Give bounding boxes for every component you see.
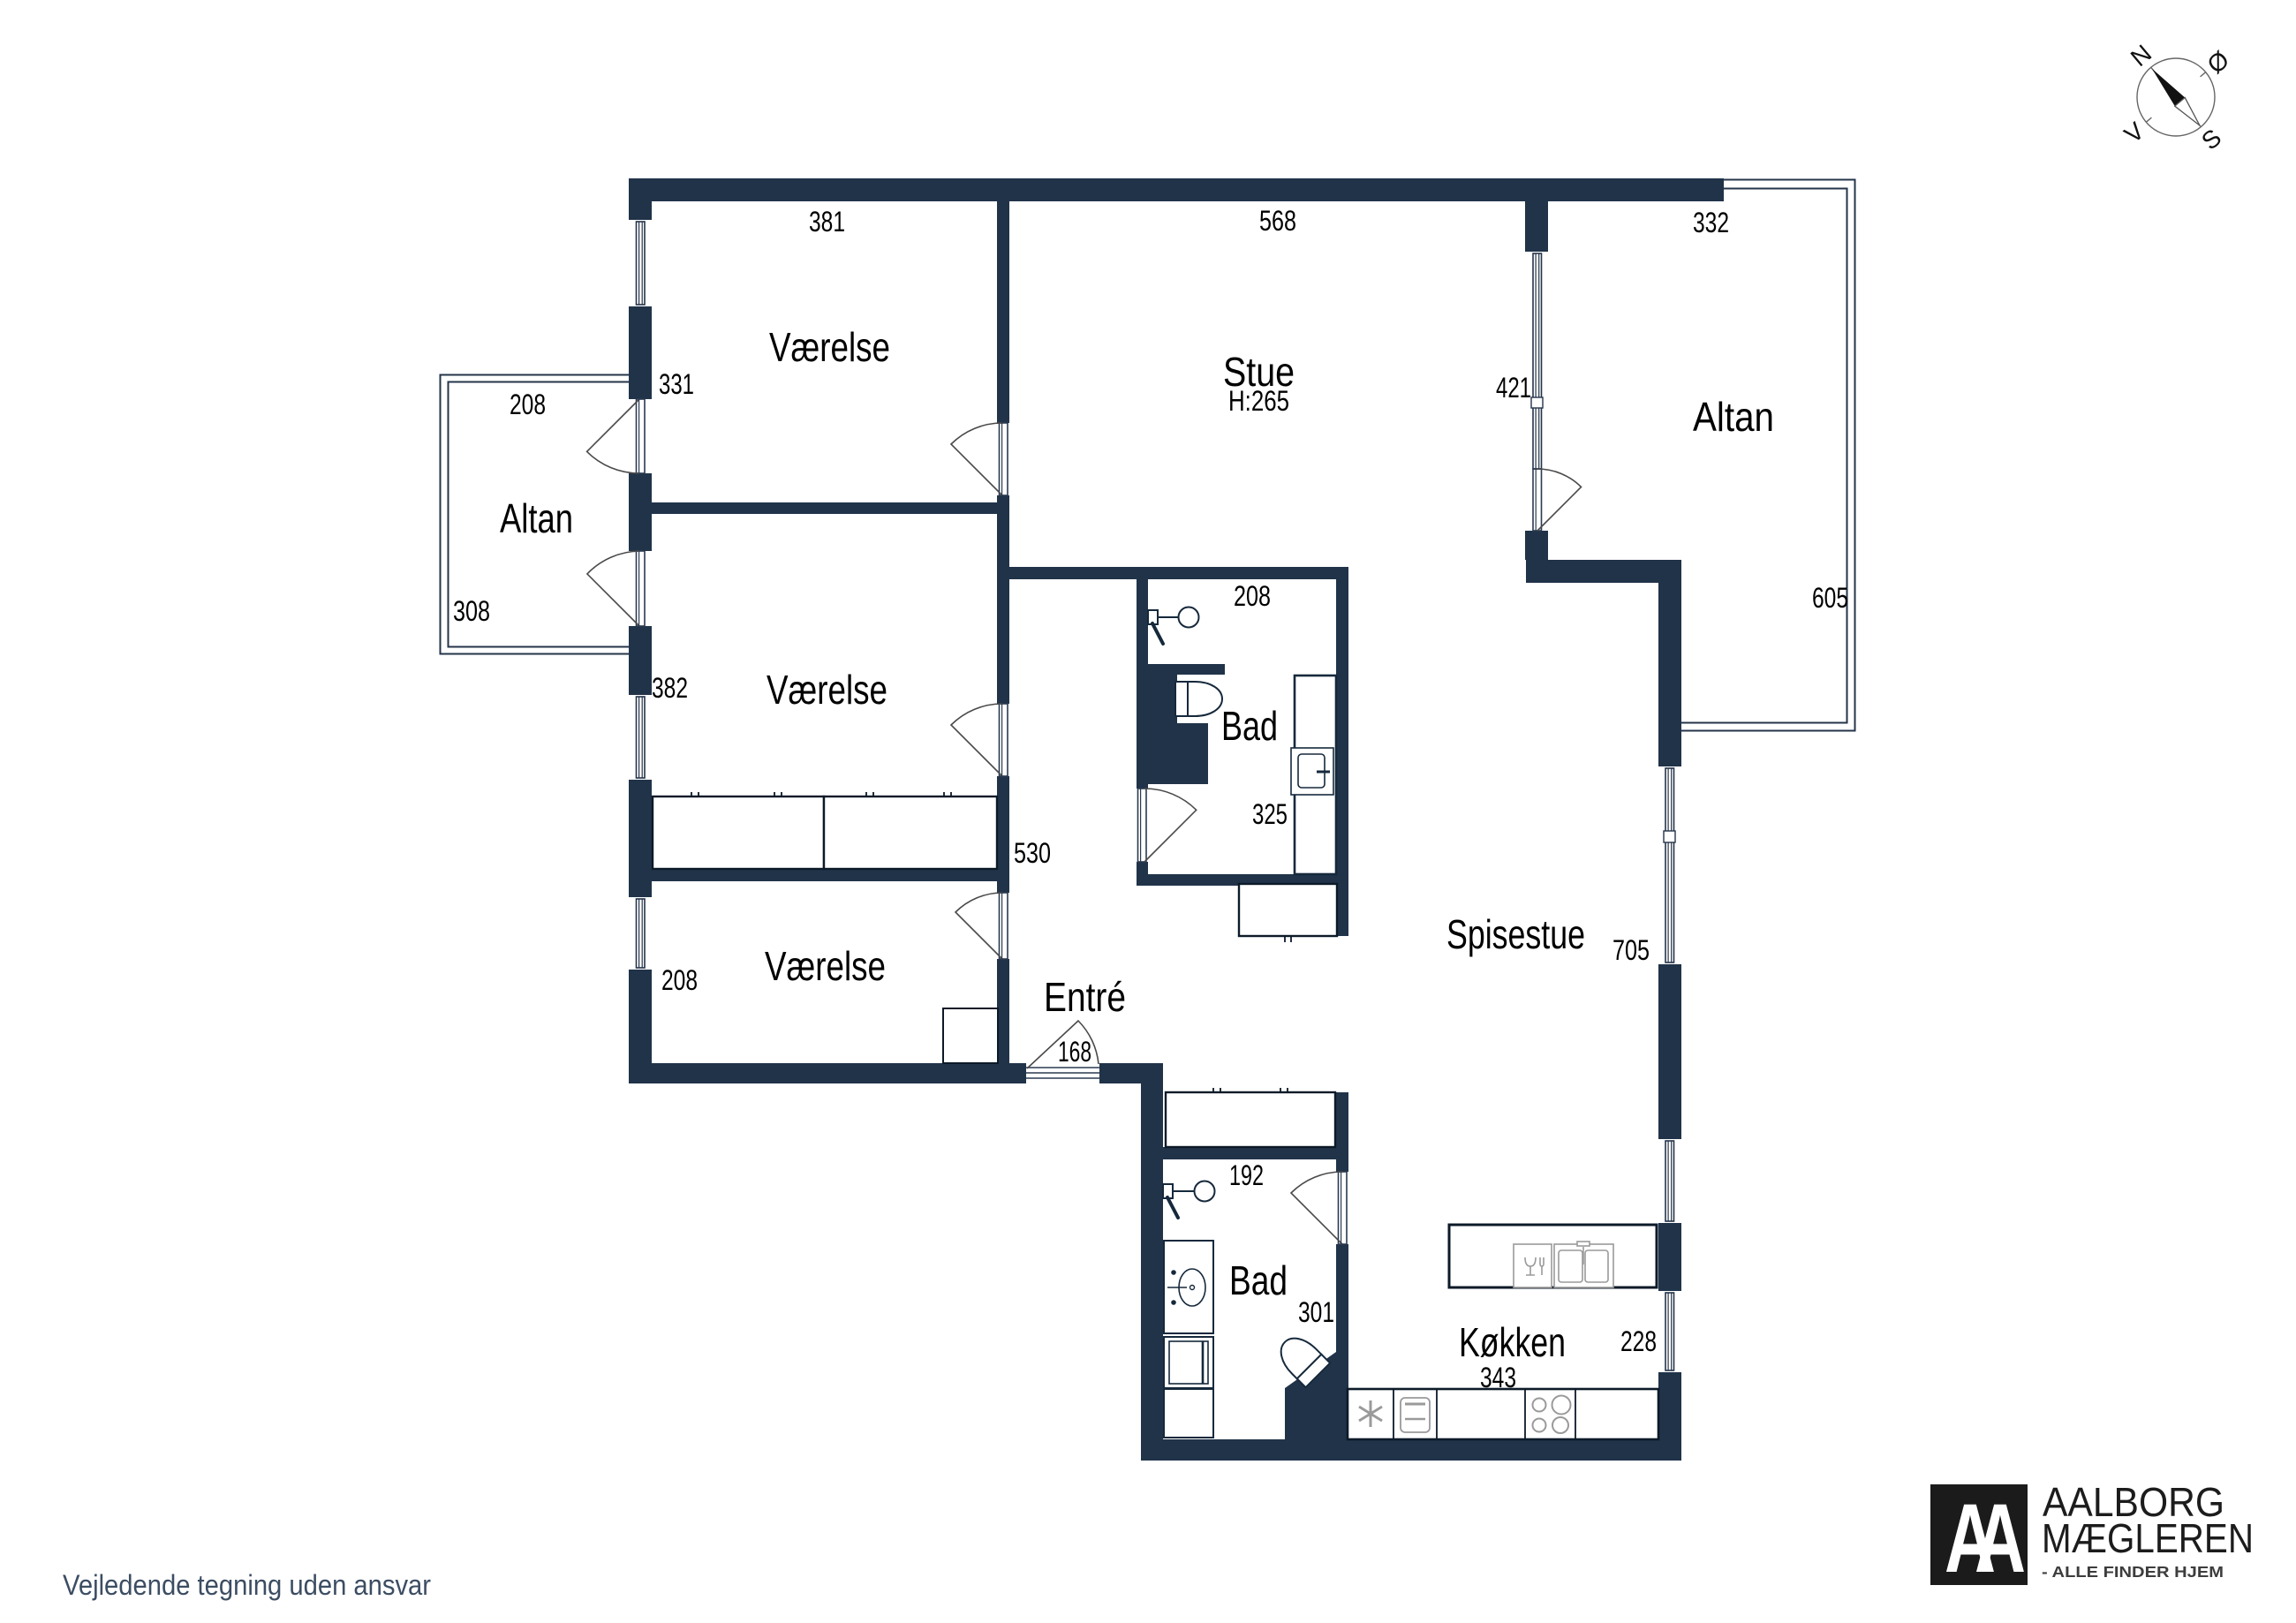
svg-text:308: 308 bbox=[453, 595, 490, 627]
svg-text:381: 381 bbox=[809, 206, 845, 238]
svg-text:208: 208 bbox=[661, 964, 698, 996]
svg-text:Værelse: Værelse bbox=[767, 667, 887, 713]
svg-text:Altan: Altan bbox=[1693, 394, 1774, 440]
svg-text:332: 332 bbox=[1693, 207, 1729, 238]
svg-text:Køkken: Køkken bbox=[1459, 1319, 1566, 1365]
svg-text:H:265: H:265 bbox=[1228, 385, 1289, 417]
svg-text:Bad: Bad bbox=[1221, 703, 1278, 749]
svg-text:Bad: Bad bbox=[1229, 1257, 1288, 1303]
svg-text:421: 421 bbox=[1496, 372, 1531, 404]
svg-text:168: 168 bbox=[1058, 1036, 1091, 1068]
svg-text:605: 605 bbox=[1812, 582, 1848, 614]
svg-text:382: 382 bbox=[652, 672, 688, 704]
svg-text:Spisestue: Spisestue bbox=[1446, 911, 1585, 957]
svg-text:331: 331 bbox=[659, 368, 694, 400]
svg-text:343: 343 bbox=[1480, 1362, 1516, 1393]
svg-text:A: A bbox=[1975, 1484, 2026, 1593]
svg-text:- ALLE FINDER HJEM: - ALLE FINDER HJEM bbox=[2042, 1563, 2224, 1581]
svg-text:MÆGLEREN: MÆGLEREN bbox=[2042, 1515, 2254, 1561]
svg-text:228: 228 bbox=[1620, 1325, 1657, 1357]
svg-text:192: 192 bbox=[1229, 1159, 1264, 1191]
svg-text:Værelse: Værelse bbox=[769, 324, 890, 370]
svg-text:208: 208 bbox=[1234, 580, 1271, 612]
svg-text:568: 568 bbox=[1259, 205, 1296, 237]
svg-text:Vejledende tegning uden ansvar: Vejledende tegning uden ansvar bbox=[63, 1569, 431, 1601]
svg-text:325: 325 bbox=[1252, 798, 1288, 830]
svg-text:705: 705 bbox=[1612, 934, 1650, 966]
svg-text:Altan: Altan bbox=[500, 495, 573, 541]
svg-text:Værelse: Værelse bbox=[765, 943, 886, 989]
svg-text:301: 301 bbox=[1298, 1296, 1334, 1328]
svg-text:208: 208 bbox=[510, 389, 546, 420]
svg-text:Entré: Entré bbox=[1044, 974, 1126, 1020]
svg-text:530: 530 bbox=[1014, 837, 1051, 869]
